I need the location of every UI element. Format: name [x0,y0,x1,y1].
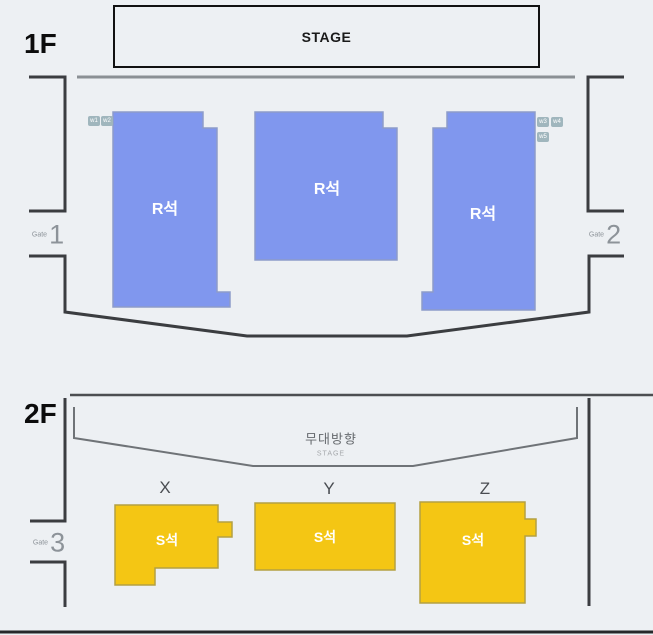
wall-1f-upper-right [588,77,624,211]
row-label-z: Z [480,479,490,499]
section-r-center[interactable] [255,112,397,260]
section-s-x[interactable] [115,505,232,585]
stage-direction-english: STAGE [317,451,345,458]
gate-1: Gate 1 [32,220,64,251]
floor-2f-label: 2F [24,398,57,430]
floor-1f-label: 1F [24,28,57,60]
gate-3: Gate 3 [33,528,65,559]
stage-box: STAGE [113,5,540,68]
seat-map-canvas [0,0,653,635]
gate-3-word: Gate [33,540,48,547]
gate-2: Gate 2 [589,220,621,251]
gate-3-number: 3 [50,528,65,559]
section-r-left[interactable] [113,112,230,307]
wheelchair-badge-w4: w4 [551,117,563,127]
row-label-x: X [159,478,170,498]
stage-label: STAGE [302,29,352,45]
row-label-y: Y [323,479,334,499]
gate-2-word: Gate [589,232,604,239]
wheelchair-badge-w3: w3 [537,117,549,127]
section-s-z[interactable] [420,502,536,603]
wheelchair-badge-w1: w1 [88,116,100,126]
section-r-right[interactable] [422,112,535,310]
venue-seat-map: STAGE 1F 2F R석 R석 R석 w1 w2 w3 w4 w5 Gate… [0,0,653,635]
stage-direction-korean: 무대방향 [305,429,357,448]
gate-1-number: 1 [49,220,64,251]
gate-1-word: Gate [32,232,47,239]
wheelchair-badge-w2: w2 [101,116,113,126]
section-s-y[interactable] [255,503,395,570]
wall-1f-upper-left [29,77,65,211]
wall-2f-lower-left [30,562,65,607]
wheelchair-badge-w5: w5 [537,132,549,142]
gate-2-number: 2 [606,220,621,251]
